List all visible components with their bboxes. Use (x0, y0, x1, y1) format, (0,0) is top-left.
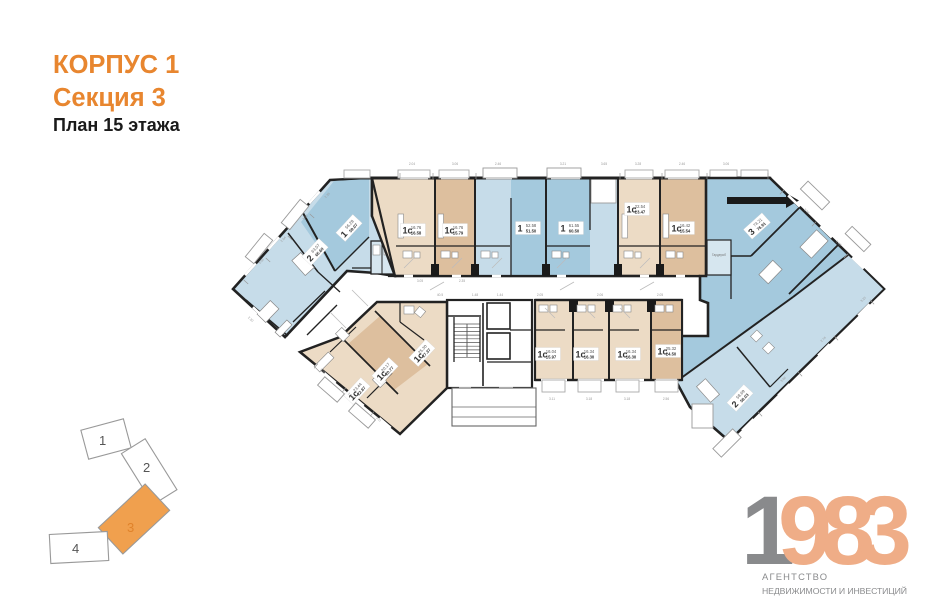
svg-text:2.46: 2.46 (679, 162, 685, 166)
svg-text:План 15 этажа: План 15 этажа (53, 115, 181, 135)
svg-text:1: 1 (518, 224, 523, 234)
svg-text:3.28: 3.28 (635, 162, 641, 166)
svg-text:АГЕНТСТВО: АГЕНТСТВО (762, 571, 828, 582)
svg-text:4: 4 (72, 541, 79, 556)
svg-text:2: 2 (143, 460, 150, 475)
svg-text:52.58: 52.58 (526, 223, 537, 228)
svg-text:3.05: 3.05 (417, 279, 423, 283)
svg-text:1.44: 1.44 (497, 293, 503, 297)
svg-text:3.11: 3.11 (549, 397, 555, 401)
svg-text:51.50: 51.50 (526, 229, 537, 234)
svg-text:16.04: 16.04 (546, 349, 557, 354)
svg-text:61.55: 61.55 (569, 223, 580, 228)
svg-text:2.46: 2.46 (495, 162, 501, 166)
svg-text:16.76: 16.76 (453, 225, 464, 230)
svg-text:3.06: 3.06 (723, 162, 729, 166)
svg-text:15.97: 15.97 (546, 355, 557, 360)
svg-text:3.06: 3.06 (452, 162, 458, 166)
svg-text:22.54: 22.54 (635, 204, 646, 209)
svg-text:1: 1 (561, 224, 566, 234)
svg-text:2.06: 2.06 (597, 293, 603, 297)
svg-text:1: 1 (99, 433, 106, 448)
svg-text:25.32: 25.32 (666, 346, 677, 351)
svg-text:16.30: 16.30 (584, 355, 595, 360)
svg-text:3.21: 3.21 (560, 162, 566, 166)
svg-text:3.65: 3.65 (601, 162, 607, 166)
svg-text:3: 3 (858, 476, 912, 585)
svg-text:3.18: 3.18 (586, 397, 592, 401)
svg-text:15.79: 15.79 (453, 231, 464, 236)
svg-text:16.42: 16.42 (680, 223, 691, 228)
svg-text:1.48: 1.48 (472, 293, 478, 297)
svg-text:16.76: 16.76 (411, 225, 422, 230)
svg-text:16.34: 16.34 (584, 349, 595, 354)
svg-text:2.56: 2.56 (663, 397, 669, 401)
svg-text:16.34: 16.34 (626, 349, 637, 354)
svg-text:16.58: 16.58 (411, 231, 422, 236)
svg-text:2.05: 2.05 (657, 293, 663, 297)
svg-text:60.50: 60.50 (569, 229, 580, 234)
svg-text:КОРПУС 1: КОРПУС 1 (53, 51, 179, 79)
svg-text:40.5: 40.5 (437, 293, 443, 297)
svg-text:2.05: 2.05 (537, 293, 543, 297)
svg-text:23.47: 23.47 (635, 210, 646, 215)
svg-text:15.54: 15.54 (680, 229, 691, 234)
svg-text:НЕДВИЖИМОСТИ И ИНВЕСТИЦИЙ: НЕДВИЖИМОСТИ И ИНВЕСТИЦИЙ (762, 585, 907, 596)
svg-text:Секция 3: Секция 3 (53, 84, 166, 112)
svg-text:2.35: 2.35 (459, 279, 465, 283)
svg-text:3: 3 (127, 520, 134, 535)
svg-text:3.18: 3.18 (624, 397, 630, 401)
svg-text:24.50: 24.50 (666, 352, 677, 357)
svg-text:Гардероб: Гардероб (712, 253, 726, 257)
svg-text:16.30: 16.30 (626, 355, 637, 360)
svg-text:2.04: 2.04 (409, 162, 415, 166)
